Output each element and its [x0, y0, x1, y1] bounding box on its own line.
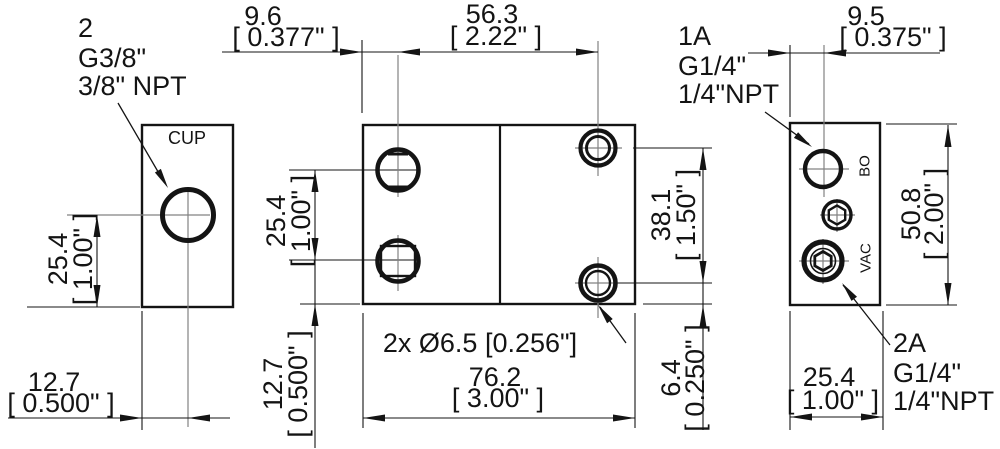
- dim-arrowhead: [312, 304, 319, 326]
- dim-arrowhead: [945, 125, 952, 147]
- dim-25.4-leftview-in: [ 1.00" ]: [68, 213, 98, 305]
- dim-56.3-in: [ 2.22" ]: [450, 21, 542, 51]
- dim-76.2-in: [ 3.00" ]: [452, 383, 544, 413]
- dim-arrowhead: [188, 415, 210, 422]
- dim-arrowhead: [340, 49, 362, 56]
- vac-callout-line2: G1/4": [893, 358, 961, 388]
- vac-port-label: VAC: [858, 243, 875, 273]
- dim-arrowhead: [576, 49, 598, 56]
- dim-arrowhead: [363, 415, 385, 422]
- bo-port-label: BO: [857, 155, 874, 177]
- bo-callout-line1: 1A: [678, 21, 711, 51]
- vac-callout-line1: 2A: [893, 328, 926, 358]
- dim-arrowhead: [768, 50, 790, 57]
- dim-25.4-mid-in: [ 1.00" ]: [286, 175, 316, 267]
- dim-38.1-in: [ 1.50" ]: [671, 169, 701, 261]
- dim-arrowhead: [945, 283, 952, 305]
- cup-callout-line2: G3/8": [78, 43, 146, 73]
- dim-arrowhead: [700, 261, 707, 283]
- cad-drawing-canvas: 2 G3/8" 3/8" NPT 1A G1/4" 1/4"NPT 2A G1/…: [0, 0, 1000, 449]
- bo-callout-line3: 1/4"NPT: [678, 79, 779, 109]
- dim-6.4-in: [ 0.250" ]: [680, 324, 710, 431]
- cup-callout-line1: 2: [78, 13, 93, 43]
- dim-25.4-right-in: [ 1.00" ]: [787, 385, 879, 415]
- cup-callout-line3: 3/8" NPT: [78, 71, 187, 101]
- dim-arrowhead: [613, 415, 635, 422]
- cup-port-label: CUP: [168, 128, 206, 148]
- drawing-page: 2 G3/8" 3/8" NPT 1A G1/4" 1/4"NPT 2A G1/…: [0, 0, 1000, 449]
- dim-50.8-in: [ 2.00" ]: [919, 168, 949, 260]
- dim-arrowhead: [700, 148, 707, 170]
- dim-arrowhead: [398, 49, 420, 56]
- dim-9.6-in: [ 0.377" ]: [232, 22, 339, 52]
- dim-12.7-left-in: [ 0.500" ]: [7, 388, 114, 418]
- leader-arrowhead: [598, 305, 613, 323]
- dim-arrowhead: [700, 305, 707, 327]
- vac-callout-line3: 1/4"NPT: [893, 386, 994, 416]
- dim-12.7-mid-in: [ 0.500" ]: [283, 330, 313, 437]
- dim-9.5-in: [ 0.375" ]: [839, 22, 946, 52]
- dim-arrowhead: [120, 415, 142, 422]
- hole-note: 2x Ø6.5 [0.256"]: [383, 328, 577, 358]
- view-outlines: [142, 123, 880, 307]
- bo-callout-line2: G1/4": [678, 51, 746, 81]
